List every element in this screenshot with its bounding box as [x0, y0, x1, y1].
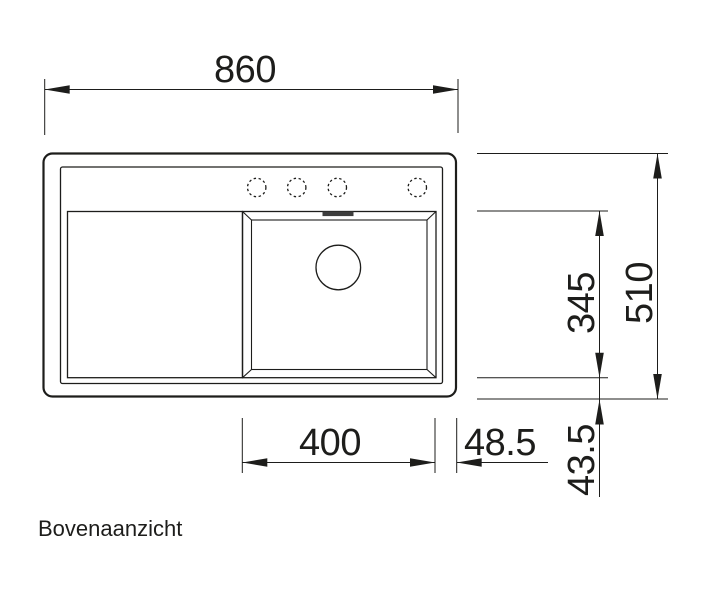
arrowhead-right-icon [410, 458, 435, 467]
basin-bevel-top-left [243, 212, 252, 221]
basin-bevel-top-right [427, 212, 436, 221]
sink-body [44, 154, 457, 397]
dimension-label-right-rim: 48.5 [464, 422, 536, 464]
dimension-label-front-rim: 43.5 [561, 424, 603, 496]
arrowhead-left-icon [242, 458, 267, 467]
drain-icon [316, 245, 361, 290]
basin-inner-bottom [252, 220, 428, 370]
tap-hole-icon-2 [288, 178, 306, 196]
drainboard [68, 212, 243, 378]
view-title: Bovenaanzicht [38, 516, 182, 541]
arrowhead-up-icon [595, 211, 604, 236]
overflow-slot-icon [323, 212, 354, 217]
dimension-label-basin-width: 400 [299, 422, 361, 464]
dimension-label-total-depth: 510 [619, 262, 661, 324]
arrowhead-left-icon [45, 85, 70, 94]
tap-hole-icon-1 [248, 178, 266, 196]
dimension-basin-depth: 345 [477, 211, 608, 378]
tap-hole-icon-3 [328, 178, 346, 196]
tap-holes [248, 178, 427, 196]
basin-bevel-bottom-left [243, 370, 252, 378]
arrowhead-up-icon [595, 400, 604, 425]
dimension-label-total-width: 860 [214, 49, 276, 91]
arrowhead-right-icon [433, 85, 458, 94]
basin-bevel-bottom-right [427, 370, 436, 378]
dimension-front-rim: 43.5 [561, 378, 604, 497]
dimension-basin-width: 400 [242, 418, 435, 473]
dimension-right-rim: 48.5 [457, 418, 548, 473]
basin-outer-edge [243, 212, 437, 378]
dimension-total-width: 860 [45, 49, 458, 135]
arrowhead-up-icon [653, 154, 662, 179]
sink-outer-outline [44, 154, 457, 397]
drawing-canvas: 860 510 345 43.5 [0, 0, 714, 600]
arrowhead-down-icon [595, 353, 604, 378]
sink-technical-drawing: 860 510 345 43.5 [0, 0, 714, 600]
arrowhead-down-icon [653, 374, 662, 399]
dimension-label-basin-depth: 345 [561, 272, 603, 334]
basin [243, 212, 437, 378]
tap-hole-icon-4 [408, 178, 426, 196]
